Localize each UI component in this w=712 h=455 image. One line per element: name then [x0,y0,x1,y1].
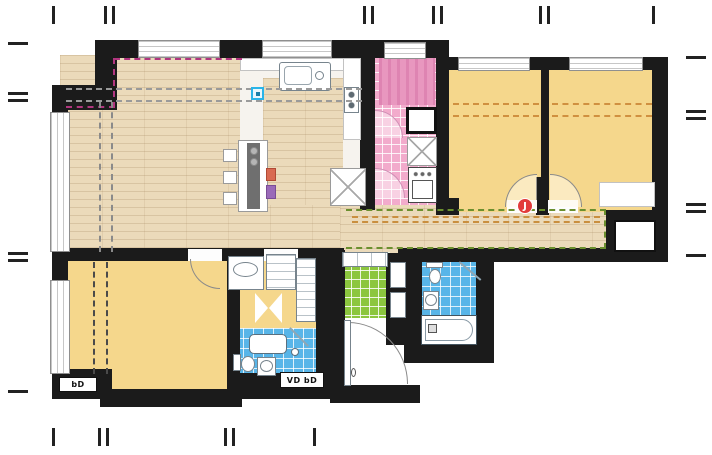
closet-line [93,262,95,374]
dining-chair [223,192,237,205]
toilet-bowl [241,356,255,372]
dimension-tick [8,390,28,393]
kitchen-cabinet-x [330,168,366,206]
island-plate [250,147,258,155]
window [138,40,220,58]
dimension-tick [52,428,55,446]
duct-label: VD bD [280,372,324,388]
duct-label: bD [59,377,97,392]
window [50,112,70,252]
zone-line-magenta [114,58,242,60]
window [569,57,643,71]
duct-shaft [406,107,437,134]
oven-door [412,180,433,199]
dimension-tick [686,203,706,206]
zone-line-gray [66,88,362,90]
dimension-tick [98,428,101,446]
dimension-tick [313,428,316,446]
zone-line-magenta [66,106,115,108]
dimension-tick [8,252,28,255]
hallway-zone-outline [346,209,606,249]
dining-chair [223,149,237,162]
wall [436,42,449,215]
zone-line-orange [453,115,539,117]
dimension-tick [112,6,115,24]
dimension-tick [686,117,706,120]
dimension-tick [52,6,55,24]
wall [404,345,494,363]
dimension-tick [652,6,655,24]
zone-line-orange [552,115,652,117]
wardrobe [266,254,296,290]
wardrobe [296,258,316,322]
dimension-tick [432,6,435,24]
dimension-tick [539,6,542,24]
shower-head [291,348,299,356]
dimension-tick [686,110,706,113]
floor-plan: J bD VD bD [0,0,712,455]
dimension-tick [547,6,550,24]
toilet-bowl [429,269,441,284]
dimension-tick [106,428,109,446]
dimension-tick [224,428,227,446]
kitchen-faucet [315,71,324,80]
dimension-tick [8,259,28,262]
dimension-tick [371,6,374,24]
toilet-tank [233,354,241,371]
dimension-tick [686,210,706,213]
bathtub-faucet [428,324,437,333]
kitchen-sink-basin [284,66,312,85]
sink-basin [260,360,273,372]
zone-line-gray [111,102,113,252]
cyan-marker-dot [256,92,260,96]
duct-box [390,292,406,318]
marker-glyph: J [523,201,527,212]
sink-basin [425,294,437,306]
entry-closet [342,252,388,267]
duct-box [390,262,406,288]
dimension-tick [440,6,443,24]
zone-line-gray [99,102,101,252]
zone-line-orange [352,216,600,218]
dimension-tick [232,428,235,446]
door-alert-marker: J [517,198,533,214]
window [262,40,332,58]
appliance-x-box [407,137,437,166]
window [50,280,70,374]
dimension-tick [8,99,28,102]
dimension-tick [8,92,28,95]
dimension-tick [686,56,706,59]
window [458,57,530,71]
zone-line-orange [352,221,600,223]
island-decor [266,168,276,181]
entry-door-handle [351,368,356,377]
dimension-tick [363,6,366,24]
vanity-basin [233,262,258,277]
dining-chair [223,171,237,184]
wall [330,385,420,403]
service-box [614,220,656,252]
dimension-tick [8,42,28,45]
toilet-tank [426,262,443,268]
wall [330,250,345,403]
island-plate [250,158,258,166]
cyan-fixture-marker [251,87,264,100]
bedroom-2-desk [599,182,655,207]
dimension-tick [104,6,107,24]
island-decor [266,185,276,199]
zone-line-orange [552,103,652,105]
wall [100,389,242,407]
dimension-tick [686,254,706,257]
wall [398,248,608,262]
bathtub [249,334,287,354]
closet-line [106,262,108,374]
window [384,42,426,59]
entry-door-leaf [344,320,351,386]
zone-line-orange [453,103,539,105]
